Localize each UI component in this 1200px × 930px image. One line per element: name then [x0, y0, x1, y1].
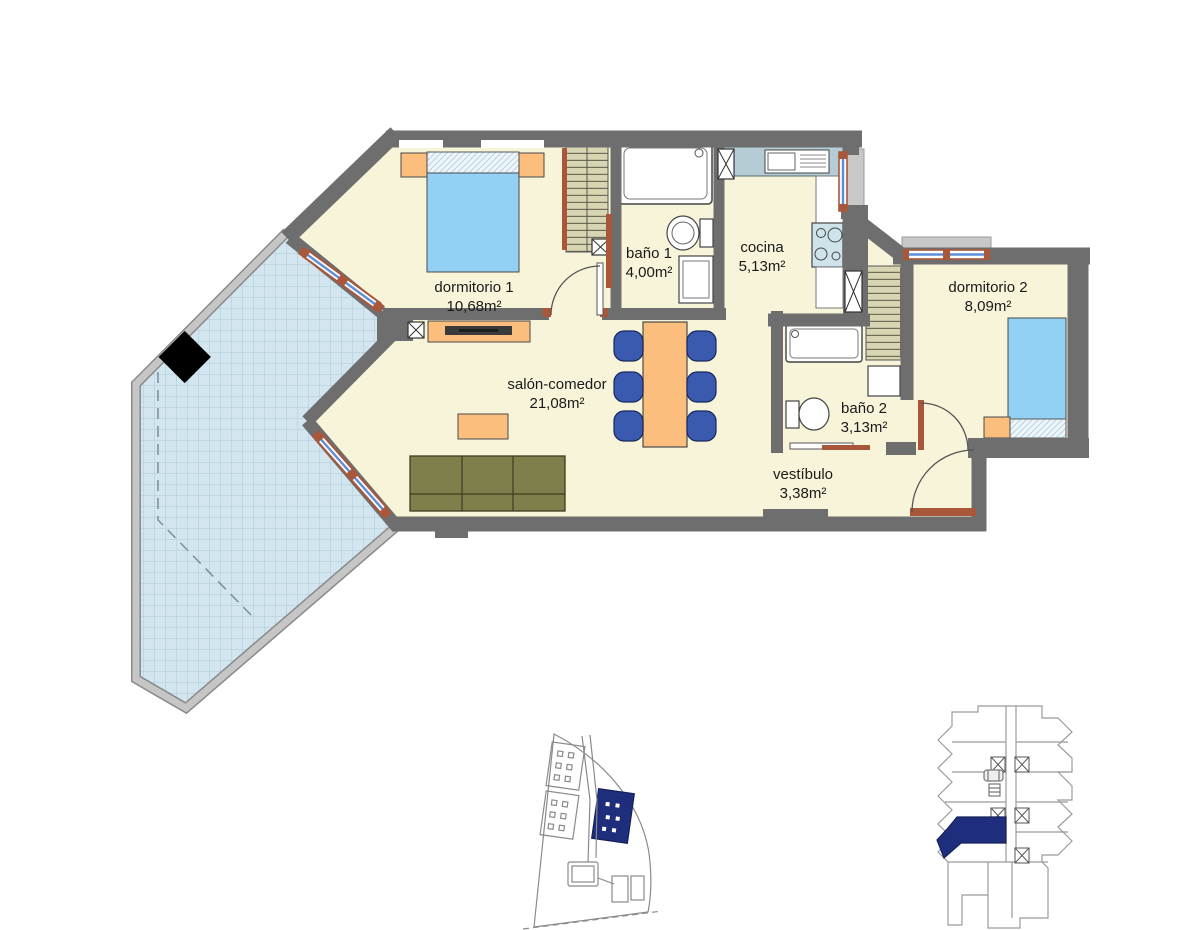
coffee-table	[458, 414, 508, 439]
toilet2-tank	[786, 401, 799, 428]
bed2-pillow	[1008, 419, 1066, 438]
washbasin2	[868, 366, 900, 396]
bed1-mattress	[427, 173, 519, 272]
bed1-pillows	[427, 152, 519, 173]
nightstand-left	[401, 153, 427, 177]
wardrobe1-sliding-door	[562, 148, 567, 250]
nightstand-right	[519, 153, 544, 177]
toilet1-tank	[700, 219, 713, 247]
bottom-wall-pier-1	[435, 524, 468, 538]
chair	[614, 411, 643, 441]
sofa	[410, 456, 565, 511]
bottom-wall-pier-2	[763, 509, 828, 524]
bed2-mattress	[1008, 318, 1066, 419]
washbasin1	[679, 256, 713, 303]
kitchen-counter-right-lower	[816, 267, 843, 308]
bano1-door-leaf	[606, 214, 612, 288]
kitchen-stove	[812, 223, 843, 267]
shaft-marker	[845, 271, 862, 312]
shaft-marker	[718, 149, 734, 179]
floor-plan-drawing	[0, 0, 1200, 930]
shaft-marker	[1015, 757, 1029, 772]
chair	[687, 372, 716, 402]
kitchen-window-ledge	[847, 149, 864, 212]
kitchen-sink-bowl	[768, 153, 795, 170]
shaft-marker	[408, 322, 424, 338]
chair	[614, 372, 643, 402]
vestibule-dorm2-wall-stub	[886, 442, 916, 455]
building-key-plan	[937, 706, 1072, 928]
toilet2-bowl	[799, 398, 829, 430]
shaft-marker	[1015, 808, 1029, 823]
floor-plan-image: dormitorio 1 10,68m² baño 1 4,00m² cocin…	[0, 0, 1200, 930]
bathtub-faucet	[695, 149, 703, 157]
dorm1-headboard-window-1	[399, 140, 443, 148]
wardrobe2	[866, 266, 903, 360]
kitchen-window	[839, 152, 847, 211]
chair	[614, 331, 643, 361]
tv-stand	[459, 329, 498, 332]
dorm2-window	[903, 249, 990, 260]
site-plan-minimap	[523, 734, 662, 929]
chair	[687, 331, 716, 361]
bano2-sliding-door	[822, 445, 870, 450]
highlighted-building	[592, 789, 635, 844]
shaft-marker	[1015, 848, 1029, 863]
chair	[687, 411, 716, 441]
nightstand2	[984, 417, 1010, 438]
shower-tray	[786, 325, 862, 362]
dining-table	[643, 322, 687, 447]
dorm1-headboard-window-2	[481, 140, 544, 148]
